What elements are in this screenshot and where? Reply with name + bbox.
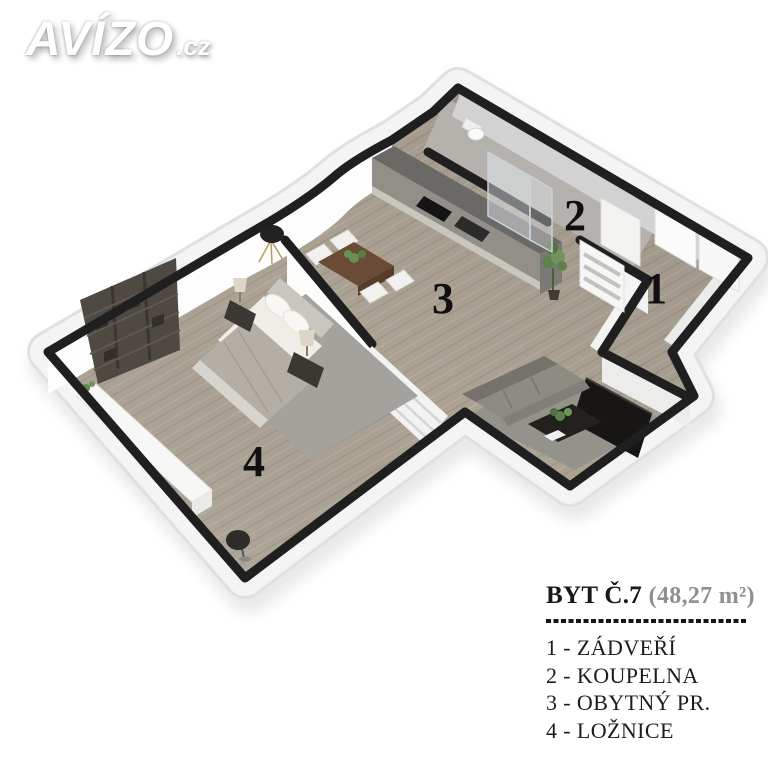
- small-plant: [89, 381, 95, 387]
- toilet-bowl: [468, 128, 484, 140]
- legend-title-line: BYT Č.7 (48,27 m²): [546, 582, 754, 610]
- table-plant: [344, 250, 352, 258]
- apartment-title: BYT Č.7: [546, 582, 642, 609]
- table-plant: [358, 250, 366, 258]
- table-lamp-shade: [233, 278, 247, 292]
- legend-item-3: 3 - OBYTNÝ PR.: [546, 689, 754, 717]
- table-lamp-shade: [299, 330, 315, 346]
- legend-items: 1 - ZÁDVEŘÍ 2 - KOUPELNA 3 - OBYTNÝ PR. …: [546, 634, 754, 744]
- room-label-2: 2: [564, 191, 586, 240]
- plant-pot: [548, 290, 560, 300]
- listing-image: { "logo": { "brand": "AVÍZO", "tld": ".c…: [0, 0, 768, 768]
- table-plant: [564, 408, 572, 416]
- room-label-4: 4: [243, 437, 265, 486]
- legend-item-4: 4 - LOŽNICE: [546, 717, 754, 745]
- table-plant: [550, 408, 558, 416]
- shower-glass: [530, 176, 552, 252]
- legend-divider: [546, 619, 748, 623]
- room-label-1: 1: [645, 264, 667, 313]
- room-label-3: 3: [432, 274, 454, 323]
- apartment-area: (48,27 m²): [649, 583, 755, 609]
- legend-item-1: 1 - ZÁDVEŘÍ: [546, 634, 754, 662]
- legend-item-2: 2 - KOUPELNA: [546, 662, 754, 690]
- legend: BYT Č.7 (48,27 m²) 1 - ZÁDVEŘÍ 2 - KOUPE…: [546, 582, 754, 744]
